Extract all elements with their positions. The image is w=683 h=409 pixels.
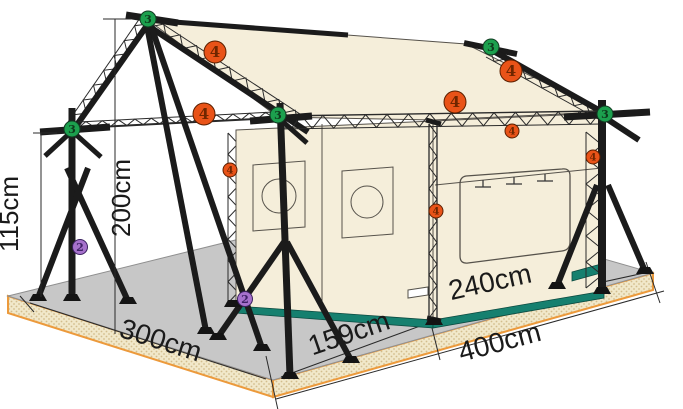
marker-orange-column-front-left: 4 xyxy=(429,204,443,218)
dim-label-200cm: 200cm xyxy=(106,159,136,237)
marker-digit-orange: 4 xyxy=(433,207,440,218)
marker-purple-middle-leg: 2 xyxy=(238,292,253,307)
marker-digit-orange: 4 xyxy=(590,153,597,164)
marker-digit-purple: 2 xyxy=(241,293,249,306)
marker-digit-green: 3 xyxy=(274,109,282,122)
marker-green-ridge-back: 3 xyxy=(483,39,499,55)
marker-orange-eave-left: 4 xyxy=(193,103,215,125)
side-wall xyxy=(236,121,433,322)
marker-orange-column-back-left: 4 xyxy=(223,163,237,177)
marker-green-right-corner: 3 xyxy=(597,106,613,122)
marker-orange-eave-front: 4 xyxy=(444,91,466,113)
truss-foot xyxy=(636,267,654,274)
marker-digit-orange: 4 xyxy=(227,166,234,177)
marker-orange-eave-small: 4 xyxy=(505,124,519,138)
marker-digit-orange: 4 xyxy=(506,62,516,80)
diagram-canvas: 3 3 3 3 3 4 4 4 xyxy=(0,0,683,409)
marker-green-apex: 3 xyxy=(140,11,156,27)
marker-green-left-corner: 3 xyxy=(64,121,80,137)
marker-digit-orange: 4 xyxy=(450,93,460,111)
marker-digit-green: 3 xyxy=(144,13,152,26)
marker-orange-right-slope: 4 xyxy=(500,60,522,82)
marker-purple-left-leg: 2 xyxy=(73,240,88,255)
marker-green-middle: 3 xyxy=(270,107,286,123)
marker-digit-green: 3 xyxy=(487,41,495,54)
dim-label-115cm: 115cm xyxy=(0,176,24,252)
truss-left-gable-slope xyxy=(68,18,148,129)
marker-digit-green: 3 xyxy=(601,108,609,121)
marker-digit-orange: 4 xyxy=(509,127,516,138)
marker-digit-orange: 4 xyxy=(199,105,209,123)
marker-orange-front-slope: 4 xyxy=(204,41,226,63)
marker-digit-purple: 2 xyxy=(76,241,84,254)
marker-orange-column-right: 4 xyxy=(586,150,600,164)
marker-digit-orange: 4 xyxy=(210,43,220,61)
marker-digit-green: 3 xyxy=(68,123,76,136)
tent-assembly-diagram: 3 3 3 3 3 4 4 4 xyxy=(0,0,683,409)
